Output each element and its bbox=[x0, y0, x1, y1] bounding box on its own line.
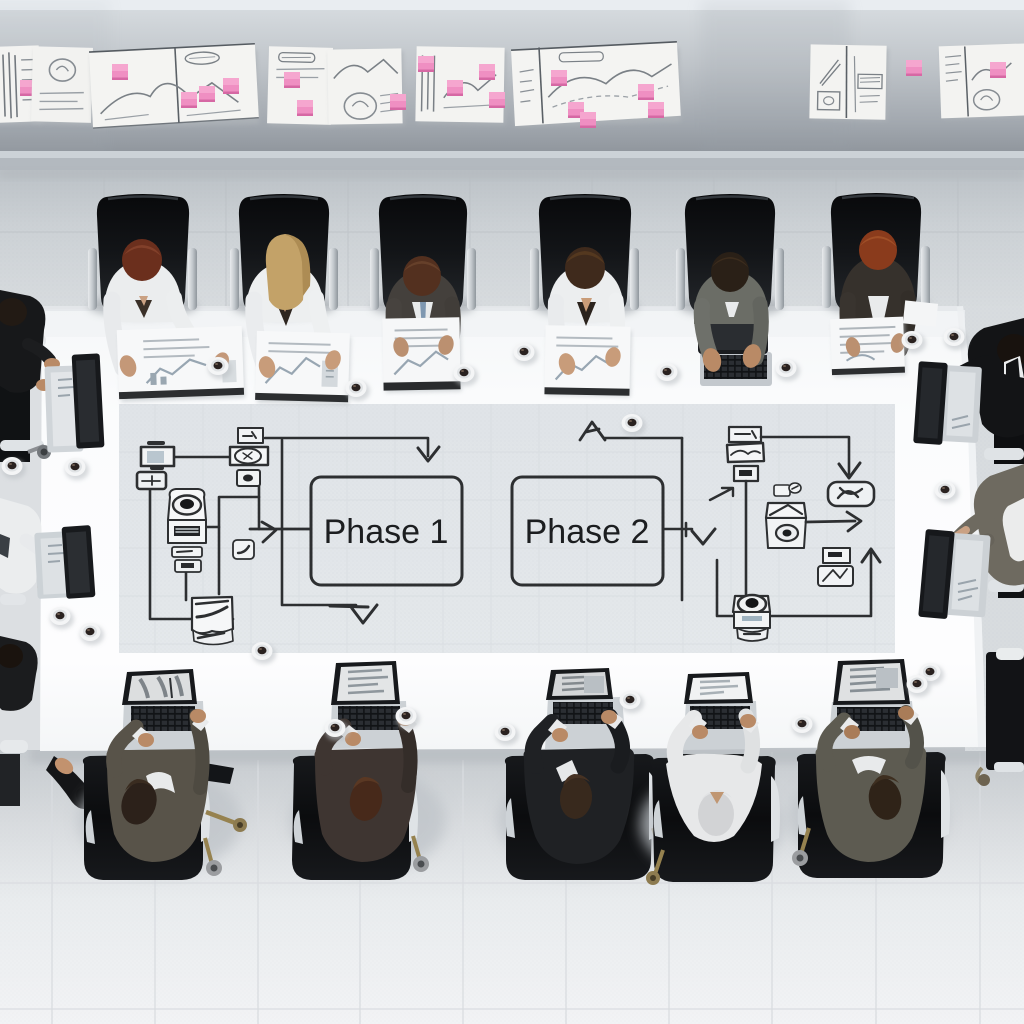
svg-text:Phase 2: Phase 2 bbox=[525, 513, 650, 551]
svg-text:Phase 1: Phase 1 bbox=[324, 513, 449, 551]
